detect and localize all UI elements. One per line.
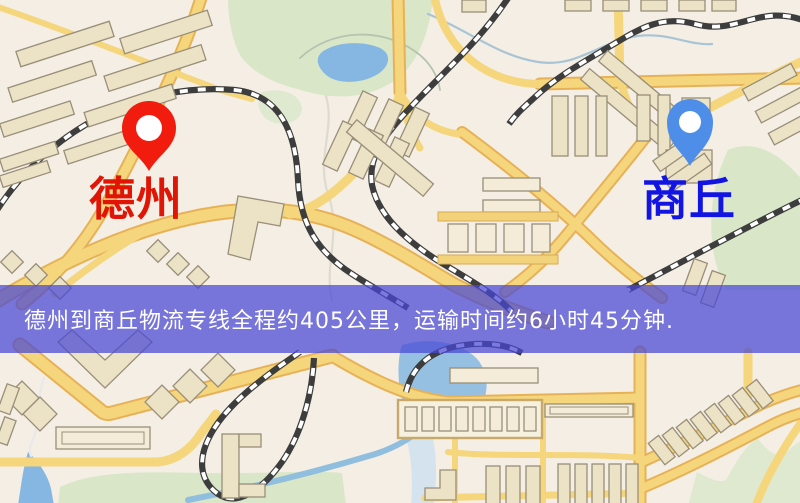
route-info-text: 德州到商丘物流专线全程约405公里，运输时间约6小时45分钟.	[0, 303, 674, 335]
destination-city-label: 商丘	[642, 176, 736, 222]
route-info-banner: 德州到商丘物流专线全程约405公里，运输时间约6小时45分钟.	[0, 285, 800, 353]
origin-city-label: 德州	[89, 176, 183, 222]
map-canvas	[0, 0, 800, 503]
map-screenshot: 德州 商丘 德州到商丘物流专线全程约405公里，运输时间约6小时45分钟.	[0, 0, 800, 503]
